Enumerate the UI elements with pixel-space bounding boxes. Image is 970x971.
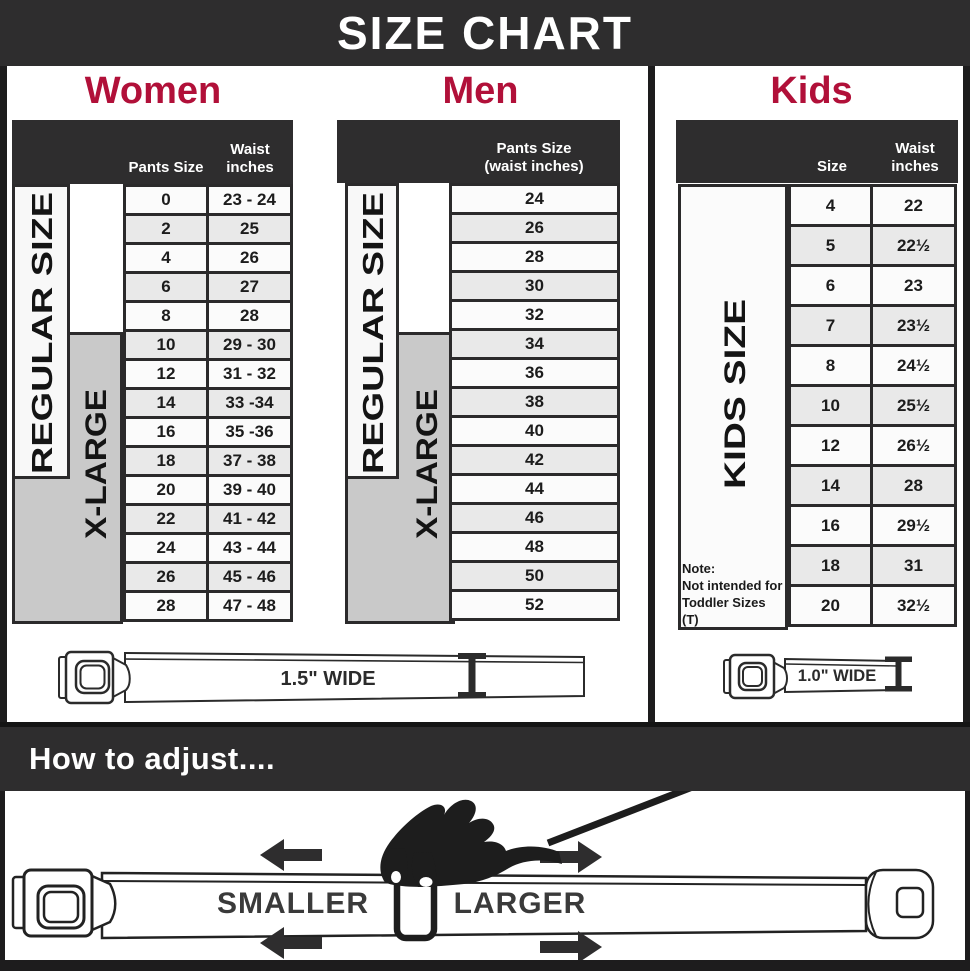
table-cell: 35 -36: [208, 418, 292, 447]
table-cell: 29½: [872, 506, 956, 546]
table-cell: 47 - 48: [208, 592, 292, 621]
table-row: 1226½: [790, 426, 956, 466]
men-regular-label: REGULAR SIZE: [358, 192, 390, 474]
table-row: 36: [451, 359, 619, 388]
seatbelt-buckle-icon: [730, 655, 774, 698]
table-cell: 41 - 42: [208, 505, 292, 534]
table-row: 1428: [790, 466, 956, 506]
table-row: 422: [790, 186, 956, 226]
table-row: 44: [451, 475, 619, 504]
kids-col-size: Size: [792, 158, 872, 176]
table-row: 1837 - 38: [125, 447, 292, 476]
table-cell: 45 - 46: [208, 563, 292, 592]
table-row: 2645 - 46: [125, 563, 292, 592]
kids-size-table: 422522½623723½824½1025½1226½14281629½183…: [788, 184, 957, 627]
table-row: 522½: [790, 226, 956, 266]
table-cell: 31 - 32: [208, 360, 292, 389]
men-heading: Men: [338, 70, 623, 116]
arrow-left-icon: [260, 839, 322, 871]
table-cell: 26: [208, 244, 292, 273]
table-row: 1029 - 30: [125, 331, 292, 360]
table-cell: 32½: [872, 586, 956, 626]
table-row: 623: [790, 266, 956, 306]
kids-note: Note: Not intended for Toddler Sizes (T): [682, 560, 784, 629]
table-cell: 32: [451, 301, 619, 330]
bottom-border: [0, 960, 970, 971]
table-cell: 6: [125, 273, 208, 302]
table-cell: 22: [872, 186, 956, 226]
adjust-illustration-area: SMALLER LARGER: [0, 791, 970, 962]
table-cell: 26½: [872, 426, 956, 466]
table-cell: 22: [125, 505, 208, 534]
table-row: 2039 - 40: [125, 476, 292, 505]
table-row: 2032½: [790, 586, 956, 626]
table-row: 38: [451, 388, 619, 417]
table-row: 1025½: [790, 386, 956, 426]
table-cell: 14: [125, 389, 208, 418]
table-row: 627: [125, 273, 292, 302]
women-size-range-graphic: REGULAR SIZE X-LARGE: [12, 184, 123, 624]
table-row: 828: [125, 302, 292, 331]
men-table-header: Pants Size (waist inches): [337, 120, 620, 183]
adult-belt-width-label: 1.5" WIDE: [280, 668, 375, 690]
table-cell: 20: [125, 476, 208, 505]
table-cell: 48: [451, 533, 619, 562]
table-row: 42: [451, 446, 619, 475]
table-row: 34: [451, 330, 619, 359]
larger-label: LARGER: [454, 887, 587, 920]
table-cell: 39 - 40: [208, 476, 292, 505]
panel-divider: [648, 66, 655, 730]
table-cell: 22½: [872, 226, 956, 266]
men-size-table: 242628303234363840424446485052: [449, 183, 620, 621]
kids-table-header: Size Waist inches: [676, 120, 958, 183]
table-cell: 25½: [872, 386, 956, 426]
table-cell: 33 -34: [208, 389, 292, 418]
table-cell: 44: [451, 475, 619, 504]
table-row: 40: [451, 417, 619, 446]
table-cell: 43 - 44: [208, 534, 292, 563]
table-row: 023 - 24: [125, 186, 292, 215]
women-xlarge-label: X-LARGE: [80, 389, 113, 539]
men-size-range-graphic: REGULAR SIZE X-LARGE: [345, 183, 455, 624]
table-cell: 27: [208, 273, 292, 302]
table-cell: 24: [125, 534, 208, 563]
page-title: SIZE CHART: [337, 6, 633, 60]
bottom-right-border: [965, 791, 970, 962]
table-cell: 23 - 24: [208, 186, 292, 215]
table-row: 28: [451, 243, 619, 272]
table-cell: 28: [451, 243, 619, 272]
table-cell: 30: [451, 272, 619, 301]
table-cell: 23½: [872, 306, 956, 346]
table-row: 1635 -36: [125, 418, 292, 447]
kids-belt-illustration: 1.0" WIDE: [700, 645, 950, 705]
table-row: 52: [451, 591, 619, 620]
table-row: 1231 - 32: [125, 360, 292, 389]
women-regular-label: REGULAR SIZE: [27, 192, 59, 474]
kids-heading: Kids: [660, 70, 963, 116]
adjust-heading: How to adjust....: [29, 741, 275, 777]
table-cell: 0: [125, 186, 208, 215]
kids-size-label: KIDS SIZE: [719, 299, 752, 489]
table-row: 30: [451, 272, 619, 301]
table-cell: 12: [790, 426, 872, 466]
table-cell: 18: [125, 447, 208, 476]
belt-tip: [866, 870, 933, 938]
adult-belt-illustration: 1.5" WIDE: [10, 640, 610, 720]
table-row: 2443 - 44: [125, 534, 292, 563]
table-cell: 24: [451, 185, 619, 214]
women-col-pants: Pants Size: [120, 159, 212, 177]
arrow-right-icon: [540, 931, 602, 962]
seatbelt-buckle-icon: [13, 870, 115, 936]
table-row: 48: [451, 533, 619, 562]
table-cell: 16: [790, 506, 872, 546]
table-row: 50: [451, 562, 619, 591]
table-row: 824½: [790, 346, 956, 386]
table-row: 1629½: [790, 506, 956, 546]
table-cell: 2: [125, 215, 208, 244]
table-cell: 4: [790, 186, 872, 226]
women-size-table: 023 - 242254266278281029 - 301231 - 3214…: [123, 184, 293, 622]
table-cell: 28: [208, 302, 292, 331]
women-col-waist: Waist inches: [210, 141, 290, 177]
table-cell: 29 - 30: [208, 331, 292, 360]
women-heading: Women: [8, 70, 298, 116]
table-row: 1433 -34: [125, 389, 292, 418]
table-row: 46: [451, 504, 619, 533]
table-cell: 36: [451, 359, 619, 388]
table-cell: 10: [790, 386, 872, 426]
table-cell: 8: [790, 346, 872, 386]
table-cell: 8: [125, 302, 208, 331]
table-cell: 6: [790, 266, 872, 306]
kids-col-waist: Waist inches: [875, 140, 955, 176]
table-row: 426: [125, 244, 292, 273]
adjust-belt-illustration: SMALLER LARGER: [0, 791, 970, 962]
table-cell: 28: [872, 466, 956, 506]
table-row: 32: [451, 301, 619, 330]
table-cell: 14: [790, 466, 872, 506]
table-cell: 12: [125, 360, 208, 389]
kids-belt-width-label: 1.0" WIDE: [798, 667, 876, 685]
table-cell: 46: [451, 504, 619, 533]
men-xlarge-label: X-LARGE: [411, 389, 444, 539]
table-cell: 7: [790, 306, 872, 346]
men-col-pants: Pants Size (waist inches): [449, 140, 619, 176]
table-cell: 50: [451, 562, 619, 591]
right-border: [963, 66, 970, 730]
table-cell: 4: [125, 244, 208, 273]
table-cell: 26: [125, 563, 208, 592]
table-cell: 34: [451, 330, 619, 359]
table-row: 2847 - 48: [125, 592, 292, 621]
table-cell: 37 - 38: [208, 447, 292, 476]
seatbelt-buckle-icon: [66, 652, 113, 703]
adjust-header-bar: How to adjust....: [0, 722, 970, 791]
table-cell: 16: [125, 418, 208, 447]
women-table-header: Pants Size Waist inches: [12, 120, 293, 184]
table-cell: 26: [451, 214, 619, 243]
table-cell: 42: [451, 446, 619, 475]
bottom-left-border: [0, 791, 5, 962]
hand-icon: [380, 791, 695, 887]
table-cell: 40: [451, 417, 619, 446]
table-cell: 10: [125, 331, 208, 360]
table-cell: 31: [872, 546, 956, 586]
table-cell: 25: [208, 215, 292, 244]
table-row: 723½: [790, 306, 956, 346]
table-cell: 23: [872, 266, 956, 306]
table-cell: 52: [451, 591, 619, 620]
table-cell: 18: [790, 546, 872, 586]
table-cell: 20: [790, 586, 872, 626]
table-cell: 24½: [872, 346, 956, 386]
table-row: 2241 - 42: [125, 505, 292, 534]
table-row: 24: [451, 185, 619, 214]
table-row: 1831: [790, 546, 956, 586]
table-row: 225: [125, 215, 292, 244]
table-row: 26: [451, 214, 619, 243]
smaller-label: SMALLER: [217, 887, 369, 920]
left-border: [0, 66, 7, 730]
table-cell: 5: [790, 226, 872, 266]
table-cell: 28: [125, 592, 208, 621]
table-cell: 38: [451, 388, 619, 417]
title-bar: SIZE CHART: [0, 0, 970, 66]
